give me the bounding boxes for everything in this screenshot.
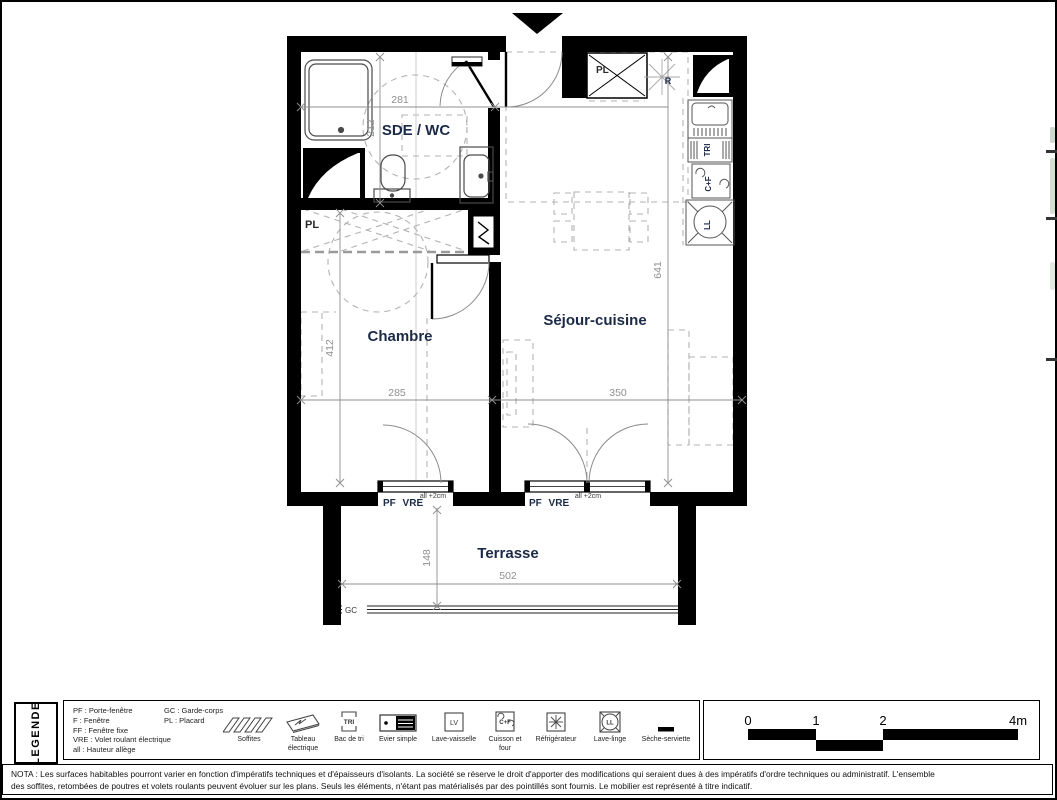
room-label-terrace: Terrasse xyxy=(477,545,538,562)
legend-item-sink: Evier simple xyxy=(374,707,422,755)
stove-oven-icon: C+F xyxy=(494,707,516,733)
legend-item-electrical-panel: Tableau électrique xyxy=(282,707,324,755)
entrance-door-swing xyxy=(507,52,562,107)
edge-tick xyxy=(1046,358,1057,361)
nota-line-2: des soffites, retombées de poutres et vo… xyxy=(11,780,1044,792)
tri-glyph: TRI xyxy=(344,719,355,726)
legend-items-row: Soffites Tableau électrique TRI Bac de t… xyxy=(222,707,694,755)
recycling-label: TRI xyxy=(703,144,712,157)
legend-item-dishwasher: LV Lave-vaisselle xyxy=(428,707,480,755)
floor-plan-page: { "plan": { "rooms": { "bathroom": "SDE … xyxy=(0,0,1057,800)
room-label-bedroom: Chambre xyxy=(367,328,432,345)
abbr-all: all : Hauteur allège xyxy=(73,745,171,755)
legend-item-label: Tableau électrique xyxy=(282,736,324,753)
bedroom-turning-circle xyxy=(328,212,428,312)
window-right xyxy=(525,481,650,492)
scale-bar-segment-3 xyxy=(883,729,1018,740)
dim-terrace-depth: 148 xyxy=(421,549,433,567)
legend-item-stove-oven: C+F Cuisson et four xyxy=(486,707,524,755)
dim-bath-width: 281 xyxy=(391,94,409,106)
fridge-label: R xyxy=(665,76,672,86)
sink-plan-icon xyxy=(688,100,732,138)
dining-table xyxy=(574,192,629,250)
dim-bath-height: 212 xyxy=(365,119,377,137)
scale-tick-0: 0 xyxy=(744,713,751,728)
bedroom-door-swing xyxy=(432,262,489,319)
drainer-hatch xyxy=(694,128,726,136)
legend-item-soffites: Soffites xyxy=(222,707,276,755)
terrace-railing: GC xyxy=(341,604,678,616)
openings xyxy=(378,255,650,492)
dim-living-height: 641 xyxy=(652,261,664,279)
legend-abbreviations-col2: GC : Garde-corps PL : Placard xyxy=(164,706,223,726)
scale-tick-2: 2 xyxy=(879,713,886,728)
legend-item-label: Bac de tri xyxy=(334,736,364,745)
edge-artifact xyxy=(1050,127,1055,143)
bedroom-furniture xyxy=(301,312,322,396)
exterior-walls xyxy=(287,36,747,625)
nota-box: NOTA : Les surfaces habitables pourront … xyxy=(2,764,1053,795)
towel-dryer-icon xyxy=(657,707,675,733)
floor-plan-drawing: GC 281 212 412 285 350 641 148 502 SDE /… xyxy=(0,0,1057,700)
entrance-arrow-icon xyxy=(512,13,563,34)
window-right-label: PF VRE xyxy=(529,498,569,509)
closet-bedroom-label: PL xyxy=(305,219,319,231)
door-swings xyxy=(383,52,648,483)
washer-label: LL xyxy=(703,220,712,230)
bathroom-door-leaf xyxy=(466,61,494,107)
scale-bar-segment-2 xyxy=(816,740,883,751)
legend-item-recycling: TRI Bac de tri xyxy=(330,707,368,755)
ll-glyph: LL xyxy=(606,721,614,727)
closet-entry-label: PL xyxy=(596,65,609,76)
scale-bar-segment-1 xyxy=(748,729,816,740)
nota-line-1: NOTA : Les surfaces habitables pourront … xyxy=(11,768,1044,780)
legend-box: PF : Porte-fenêtre F : Fenêtre FF : Fenê… xyxy=(63,700,700,760)
room-label-bathroom: SDE / WC xyxy=(382,122,451,139)
legend-item-label: Réfrigérateur xyxy=(536,736,577,745)
fridge-icon xyxy=(545,707,567,733)
legend-abbreviations-col1: PF : Porte-fenêtre F : Fenêtre FF : Fenê… xyxy=(73,706,171,755)
sill-left-label: all +2cm xyxy=(420,493,446,500)
window-left-label: PF VRE xyxy=(383,498,423,509)
edge-artifact xyxy=(1050,158,1055,214)
abbr-vre: VRE : Volet roulant électrique xyxy=(73,735,171,745)
abbr-pf: PF : Porte-fenêtre xyxy=(73,706,171,716)
bedroom-window-door-swing xyxy=(383,425,441,483)
legend-item-label: Evier simple xyxy=(379,736,417,745)
edge-tick xyxy=(1046,217,1057,220)
washing-machine-icon: LL xyxy=(598,707,622,733)
bedroom-door-header xyxy=(437,255,489,263)
scale-tick-1: 1 xyxy=(812,713,819,728)
lv-glyph: LV xyxy=(450,720,458,727)
recycling-bin-icon: TRI xyxy=(339,707,359,733)
legend-item-label: Cuisson et four xyxy=(486,736,524,753)
dim-bedroom-width: 285 xyxy=(388,387,406,399)
window-left xyxy=(378,481,453,492)
legend-title: LEGENDE xyxy=(30,701,42,765)
legend-title-box: LEGENDE xyxy=(14,702,58,764)
dim-terrace-width: 502 xyxy=(499,570,517,582)
cf-glyph: C+F xyxy=(499,720,511,726)
sill-right-label: all +2cm xyxy=(575,493,601,500)
legend-item-washing-machine: LL Lave-linge xyxy=(588,707,632,755)
abbr-pl: PL : Placard xyxy=(164,716,223,726)
living-window-door-swing-left xyxy=(528,424,587,483)
legend-item-label: Lave-linge xyxy=(594,736,626,745)
dishwasher-icon: LV xyxy=(443,707,465,733)
sink-icon xyxy=(379,707,417,733)
room-label-living: Séjour-cuisine xyxy=(543,312,646,329)
legend-item-fridge: Réfrigérateur xyxy=(530,707,582,755)
soffites-icon xyxy=(223,707,275,733)
scale-tick-4m: 4m xyxy=(1009,713,1027,728)
cooking-label: C+F xyxy=(704,176,713,191)
toilet-icon xyxy=(374,155,410,202)
shower-tray-icon xyxy=(305,60,372,140)
edge-tick xyxy=(1046,150,1057,153)
legend-item-label: Lave-vaisselle xyxy=(432,736,476,745)
abbr-gc: GC : Garde-corps xyxy=(164,706,223,716)
scale-bar: 0 1 2 4m xyxy=(703,700,1040,760)
fridge-snowflake-icon xyxy=(644,59,680,95)
abbr-f: F : Fenêtre xyxy=(73,716,171,726)
duct-symbol xyxy=(473,216,494,248)
abbr-ff: FF : Fenêtre fixe xyxy=(73,726,171,736)
dim-living-width: 350 xyxy=(609,387,627,399)
sofa xyxy=(668,330,689,445)
edge-artifact xyxy=(1050,262,1055,290)
railing-label: GC xyxy=(345,606,357,615)
living-window-door-swing-right xyxy=(589,424,648,483)
dim-bedroom-height: 412 xyxy=(324,339,336,357)
legend-item-label: Sèche-serviette xyxy=(642,736,691,745)
legend-item-label: Soffites xyxy=(237,736,260,745)
legend-item-towel-dryer: Sèche-serviette xyxy=(638,707,694,755)
electrical-panel-icon xyxy=(286,707,320,733)
